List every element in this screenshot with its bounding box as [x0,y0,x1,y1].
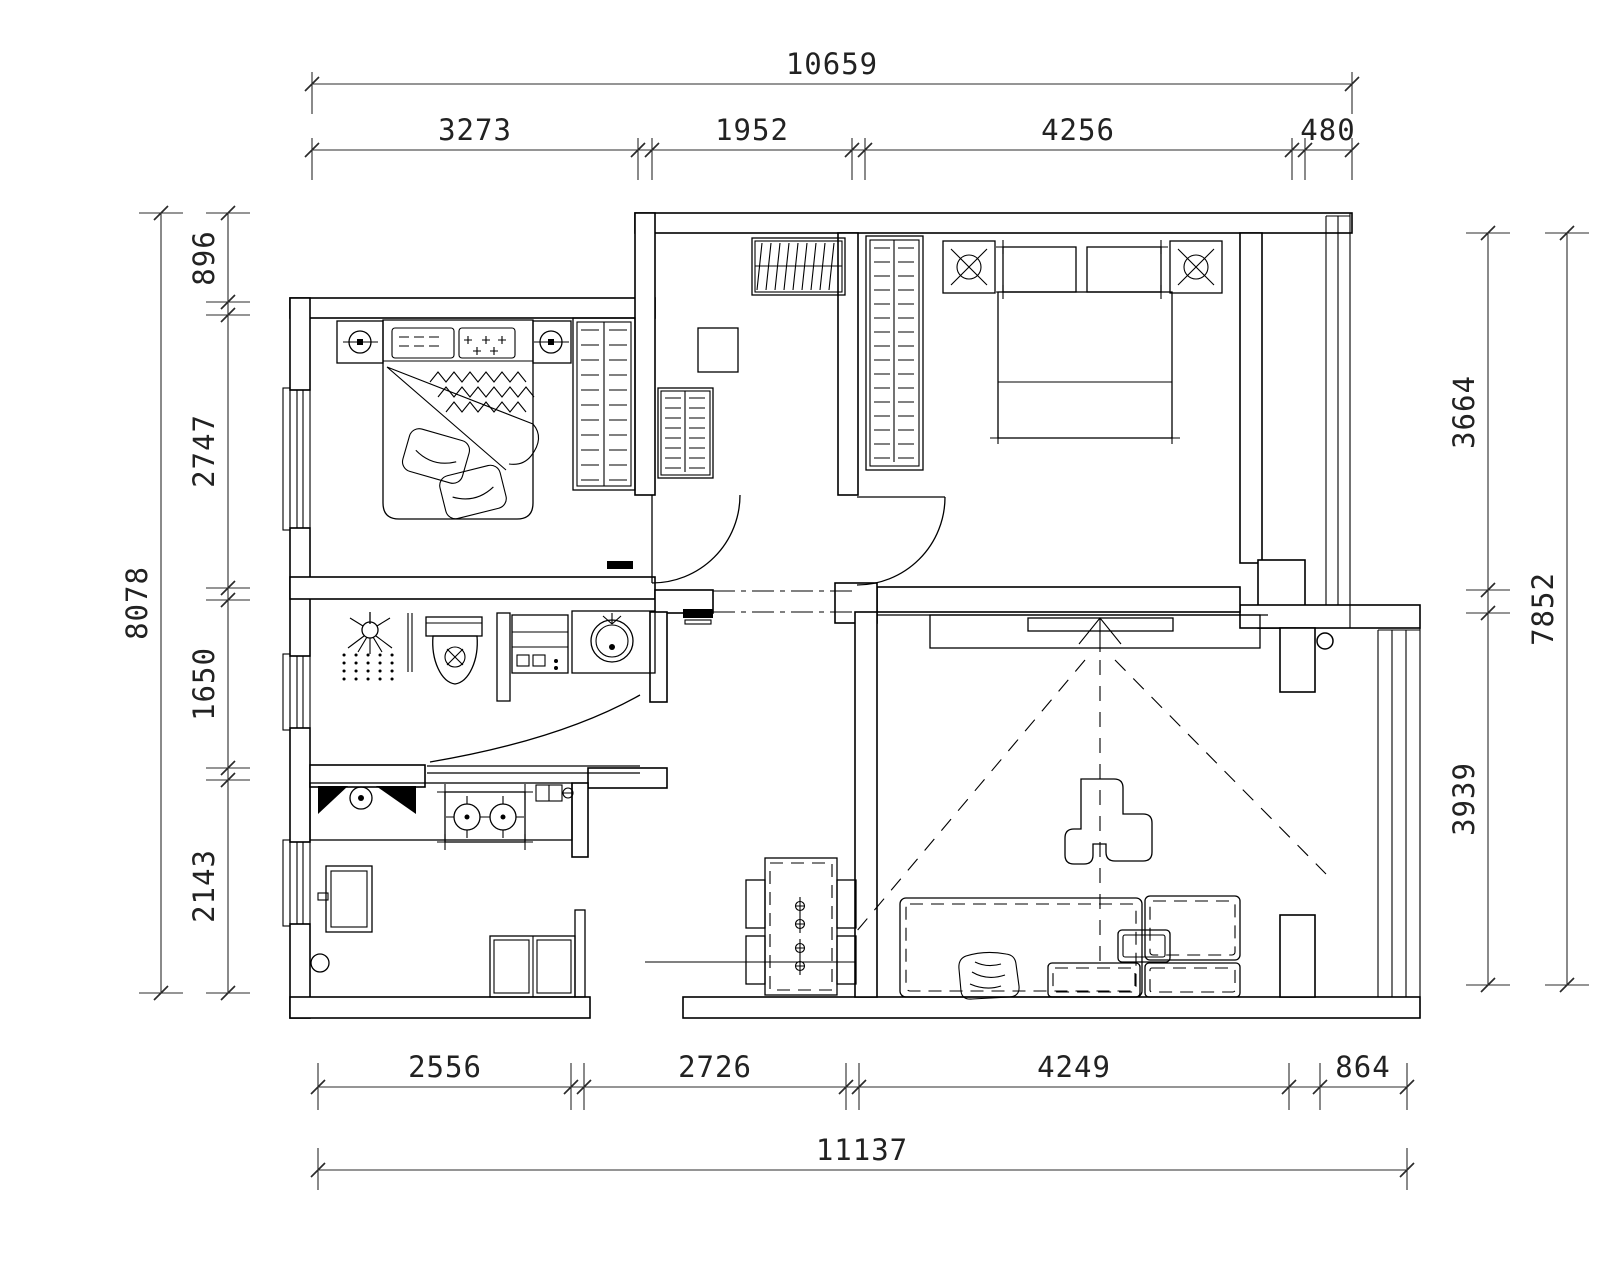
dimension-top-overall: 10659 [305,47,1359,114]
dim-bottom-seg-4: 864 [1335,1050,1390,1084]
window-bedroom1-icon [283,388,310,530]
dim-bottom-overall-label: 11137 [816,1133,908,1167]
floor-plan-canvas: 10659 3273 1952 4256 480 8078 896 2747 1… [0,0,1600,1280]
dim-top-seg-2: 1952 [715,113,789,147]
dim-right-overall-label: 7852 [1526,572,1560,646]
window-kitchen-icon [283,840,310,926]
kitchen-fixtures [310,783,585,997]
shower-icon [344,612,392,679]
coffee-table-icon [1065,779,1152,864]
door-stopper-icon [1317,633,1333,649]
small-rack-icon [658,388,713,478]
dimension-bottom-overall: 11137 [311,1133,1414,1190]
bed1-icon [337,320,571,521]
floor-plan-drawing: 10659 3273 1952 4256 480 8078 896 2747 1… [0,0,1600,1280]
dimension-top-segments: 3273 1952 4256 480 [305,113,1359,180]
living-room-bay-window-icon [1378,628,1420,1018]
bath-column [497,613,510,701]
bath-shelf-icon [512,615,568,673]
living-room-furniture [645,615,1333,999]
dining-set-icon [645,858,856,995]
shower-partition-icon [408,613,412,672]
tv-projection-lines [856,660,1326,966]
pillow-icon [1087,247,1161,292]
dimension-right-overall: 7852 [1526,226,1589,992]
dim-left-seg-4: 2143 [187,849,221,923]
dim-top-seg-3: 4256 [1041,113,1115,147]
threshold-hall [683,609,713,618]
dim-left-seg-3: 1650 [187,647,221,721]
dimension-bottom-segments: 2556 2726 4249 864 [311,1050,1414,1110]
dim-left-seg-2: 2747 [187,414,221,488]
right-bay-window-icon [1326,213,1350,628]
pillow-icon [1003,247,1076,292]
kitchen-appliance-icon [536,785,573,801]
toilet-icon [426,617,482,684]
dim-right-seg-2: 3939 [1447,762,1481,836]
floor-drain-icon [311,954,329,972]
dim-bottom-seg-2: 2726 [678,1050,752,1084]
blanket-icon [959,952,1019,999]
dim-bottom-seg-1: 2556 [408,1050,482,1084]
sofa-icon [900,896,1240,999]
wardrobe2-icon [866,236,923,470]
dim-top-seg-1: 3273 [438,113,512,147]
dim-left-overall-label: 8078 [120,566,154,640]
dim-top-overall-label: 10659 [786,47,878,81]
bedroom2-furniture [866,236,1222,470]
tv-wall-icon [856,615,1326,966]
washbasin-icon [572,611,655,673]
bed2-icon [943,240,1222,444]
dimension-left-segments: 896 2747 1650 2143 [187,206,250,1000]
bathroom-door-icon [427,695,640,773]
kitchen-sink-icon [318,786,416,814]
left-wall-windows [283,388,310,926]
bedroom1-door-icon [607,495,740,583]
hall-cabinet-icon [698,328,738,372]
bedroom1-furniture [337,318,635,521]
table-decor-icons [795,897,805,975]
bathroom-fixtures [344,611,655,701]
base-cabinet-icon [490,910,585,997]
dimension-left-overall: 8078 [120,206,183,1000]
shoe-rack-icon [752,238,845,295]
dining-chair-icon [746,880,765,928]
throw-pillow-icon [438,463,509,521]
window-bathroom-icon [283,654,310,730]
dim-left-seg-1: 896 [187,230,221,285]
bedroom2-door-icon [857,497,945,585]
refrigerator-icon [318,866,372,932]
pillow-icon [459,328,515,358]
hallway-furniture [658,238,845,478]
dim-bottom-seg-3: 4249 [1037,1050,1111,1084]
dining-chair-icon [837,880,856,928]
dimension-right-segments: 3664 3939 [1447,226,1510,992]
wardrobe1-icon [573,318,635,490]
dining-chair-icon [746,936,765,984]
dining-table-icon [765,858,837,995]
throw-pillow-icon [400,426,472,485]
dim-right-seg-1: 3664 [1447,375,1481,449]
pillow-icon [392,328,454,358]
dim-top-seg-4: 480 [1300,113,1355,147]
dining-chair-icon [837,936,856,984]
threshold-bedroom1 [607,561,633,569]
